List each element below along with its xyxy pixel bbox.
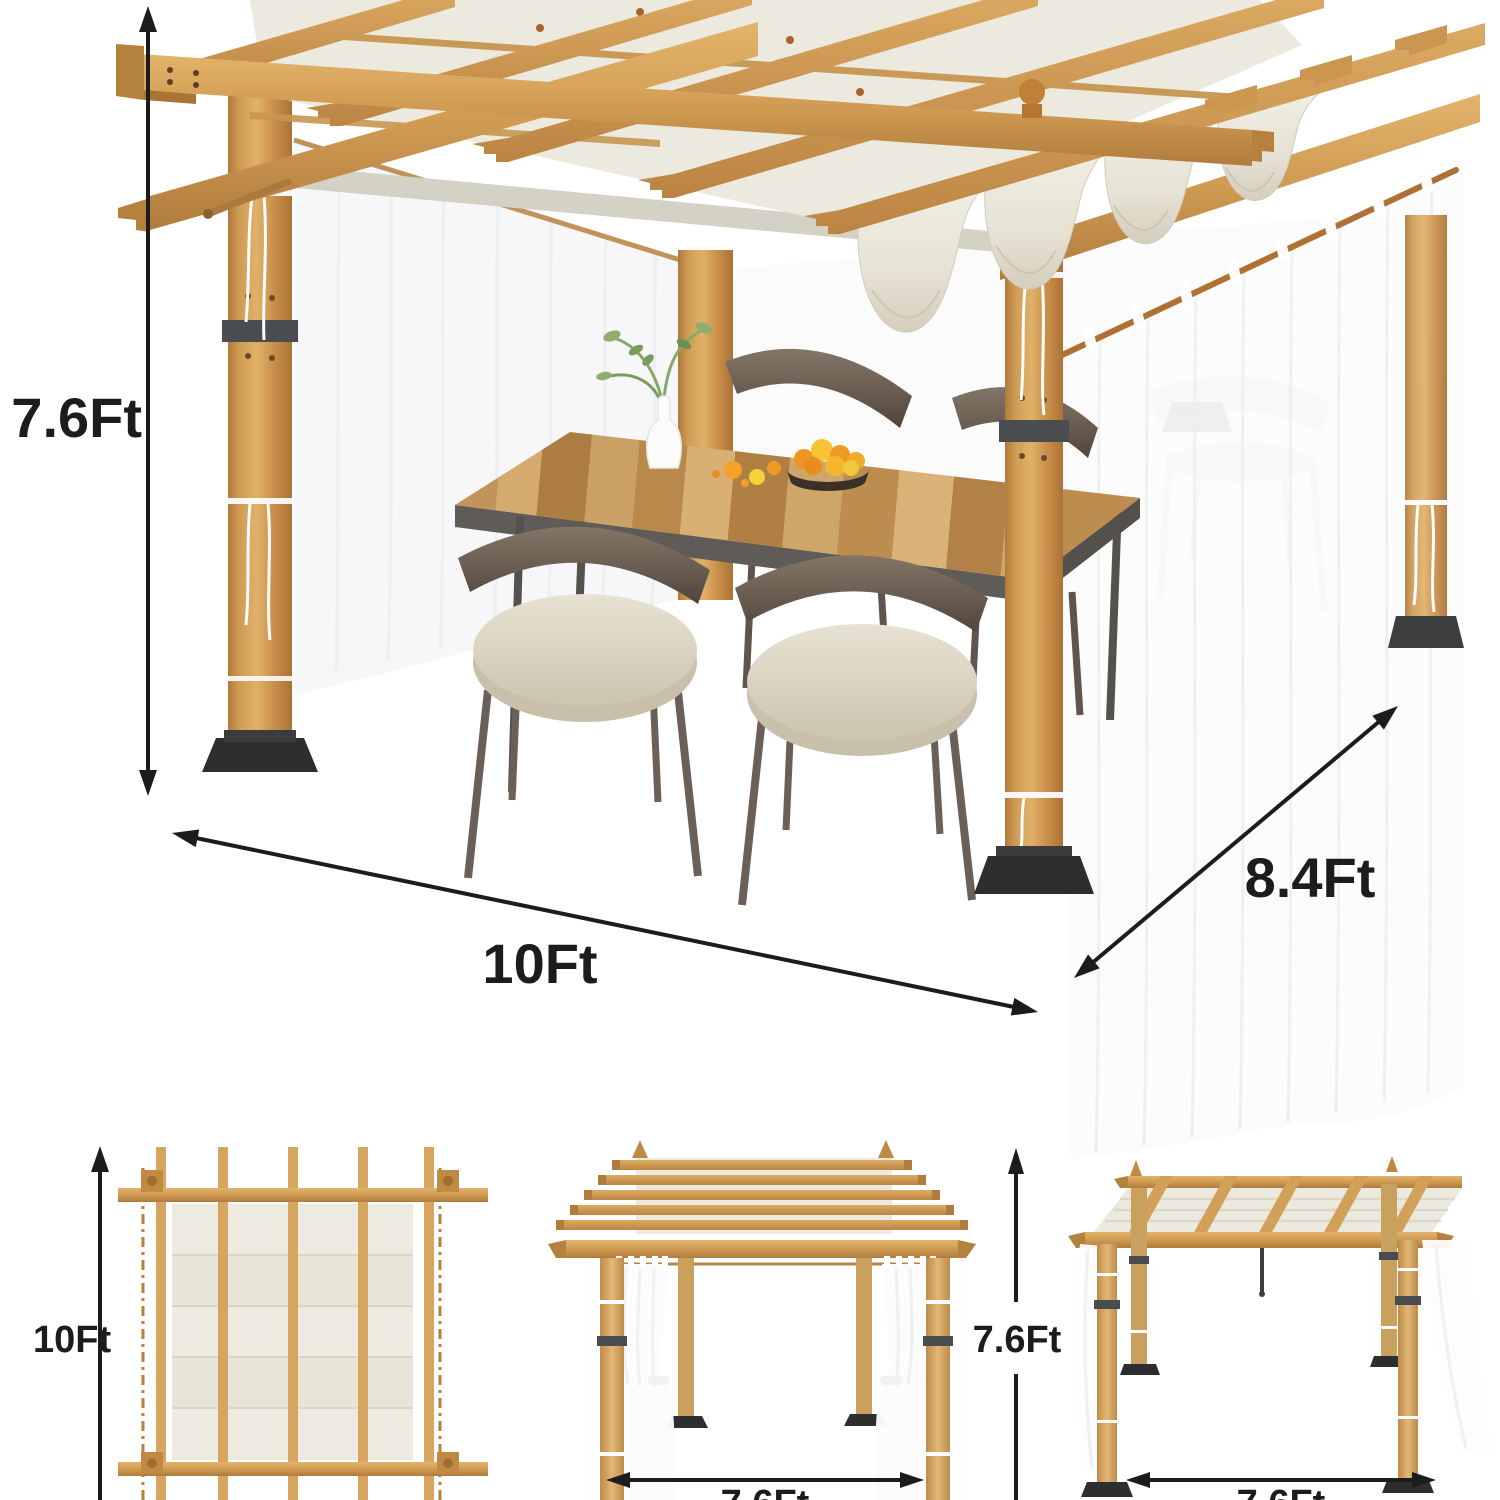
pergola-main-view [116,0,1485,1160]
top-view-depth-label: 10Ft [33,1319,111,1361]
side-view-right-post [1398,1240,1418,1482]
front-view-right-post [926,1258,950,1500]
dimension-height: 7.6Ft [11,6,157,796]
post-finial [1019,79,1045,118]
pergola-dimensions-image: 7.6Ft 10Ft 8.4Ft [0,0,1500,1500]
front-view-width-label: 7.6Ft [721,1483,810,1500]
top-view-beam-bottom [118,1462,488,1476]
front-view-beam [566,1240,958,1258]
pergola-side-view: 7.6Ft [1068,1156,1492,1500]
top-view-dimension: 10Ft [33,1146,111,1500]
front-view-curtains [584,1256,966,1500]
main-depth-label: 8.4Ft [1245,846,1376,909]
front-view-height-dimension: 7.6Ft [973,1148,1062,1500]
main-width-label: 10Ft [482,932,597,995]
main-height-label: 7.6Ft [11,386,142,449]
front-view-left-post [600,1258,624,1500]
pergola-front-view: 7.6Ft [548,1140,976,1500]
dimension-width: 10Ft [172,830,1038,1016]
top-view-beam-top [118,1188,488,1202]
side-view-left-post [1097,1244,1117,1486]
front-view-height-label: 7.6Ft [973,1319,1062,1361]
pergola-top-view: 10Ft [33,1146,488,1500]
front-right-chair [735,555,988,905]
side-view-width-label: 7.6Ft [1237,1483,1326,1500]
